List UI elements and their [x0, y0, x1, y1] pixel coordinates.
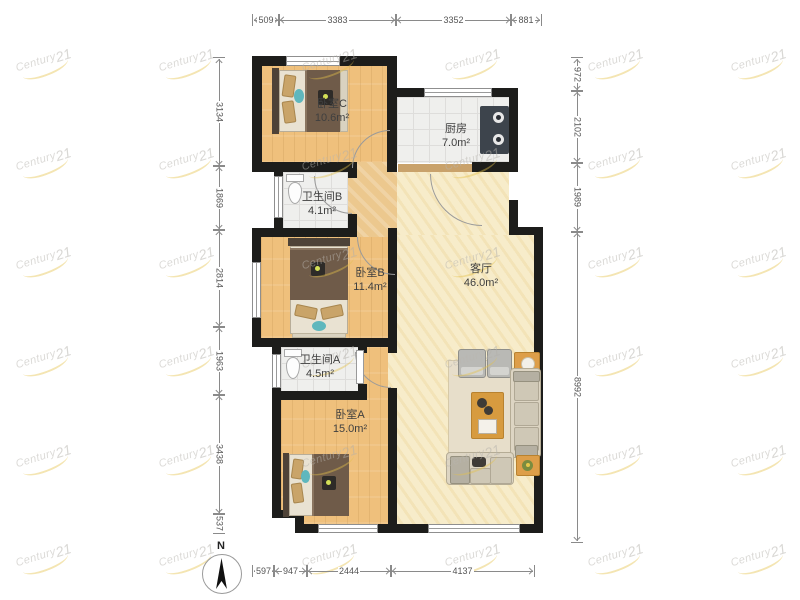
dimension-value: 1869 — [215, 187, 224, 209]
room-label-bedroom-b: 卧室B 11.4m² — [353, 266, 386, 295]
room-name: 卧室B — [353, 266, 386, 280]
wall — [388, 228, 397, 237]
room-area: 4.1m² — [302, 204, 342, 218]
room-area: 11.4m² — [353, 280, 386, 294]
dimension-bottom: 597 — [252, 565, 275, 577]
wall — [509, 227, 543, 235]
watermark: Century21 — [156, 430, 246, 485]
dimension-value: 597 — [255, 567, 272, 576]
notch-patch — [281, 518, 295, 524]
dimension-value: 881 — [517, 16, 534, 25]
wall — [509, 88, 518, 172]
armchair — [458, 349, 486, 378]
bed-b-headboard — [288, 238, 350, 246]
watermark: Century21 — [585, 133, 675, 188]
window-bedroom-c — [286, 56, 340, 66]
watermark: Century21 — [156, 133, 246, 188]
wall — [348, 214, 357, 237]
watermark: Century21 — [585, 331, 675, 386]
watermark: Century21 — [13, 232, 103, 287]
watermark: Century21 — [728, 133, 800, 188]
room-name: 卧室A — [333, 408, 367, 422]
bed-b-tray — [311, 262, 325, 276]
dimension-value: 2444 — [338, 567, 360, 576]
room-label-bathroom-a: 卫生间A 4.5m² — [300, 353, 340, 382]
watermark: Century21 — [728, 232, 800, 287]
watermark: Century21 — [728, 529, 800, 584]
watermark: Century21 — [728, 331, 800, 386]
dimension-value: 3352 — [442, 16, 464, 25]
watermark: Century21 — [156, 34, 246, 89]
watermark: Century21 — [585, 34, 675, 89]
dimension-left: 2814 — [213, 229, 225, 328]
dimension-value: 2814 — [215, 267, 224, 289]
room-label-bedroom-a: 卧室A 15.0m² — [333, 408, 367, 437]
window-bathroom-b — [274, 176, 283, 218]
watermark: Century21 — [13, 34, 103, 89]
entry-door-gap — [509, 172, 518, 200]
watermark: Century21 — [585, 430, 675, 485]
sofa-main — [510, 368, 541, 458]
wall — [252, 338, 397, 347]
room-name: 卫生间B — [302, 190, 342, 204]
dimension-value: 8992 — [573, 376, 582, 398]
dimension-bottom: 2444 — [306, 565, 392, 577]
room-label-living-room: 客厅 46.0m² — [464, 262, 498, 291]
dimension-left: 1869 — [213, 165, 225, 231]
armchair — [487, 349, 512, 378]
watermark: Century21 — [585, 529, 675, 584]
room-name: 客厅 — [464, 262, 498, 276]
watermark: Century21 — [585, 232, 675, 287]
dimension-bottom: 4137 — [390, 565, 535, 577]
window-bathroom-a — [272, 354, 281, 388]
room-area: 10.6m² — [315, 111, 349, 125]
dimension-left: 3134 — [213, 57, 225, 167]
dimension-bottom: 947 — [273, 565, 308, 577]
bed-c-headboard — [272, 68, 279, 134]
dimension-right: 1989 — [571, 162, 583, 233]
wall — [272, 391, 367, 400]
dimension-top: 3383 — [278, 14, 397, 26]
room-name: 卫生间A — [300, 353, 340, 367]
bed-a-tray — [322, 476, 336, 490]
bed-b-cushion — [312, 321, 326, 331]
watermark: Century21 — [13, 529, 103, 584]
north-label: N — [217, 540, 225, 552]
floor-plan: Century21Century21Century21Century21Cent… — [0, 0, 800, 600]
room-label-bedroom-c: 卧室C 10.6m² — [315, 97, 349, 126]
dimension-left: 3438 — [213, 394, 225, 515]
dimension-value: 3438 — [215, 443, 224, 465]
dimension-value: 3134 — [215, 101, 224, 123]
watermark: Century21 — [156, 232, 246, 287]
bed-b-bench — [292, 333, 346, 338]
dimension-value: 537 — [215, 515, 224, 532]
dimension-value: 4137 — [451, 567, 473, 576]
dimension-top: 3352 — [395, 14, 512, 26]
dimension-top: 509 — [252, 14, 280, 26]
window-bedroom-a — [318, 524, 378, 533]
wall — [252, 56, 262, 172]
room-name: 卧室C — [315, 97, 349, 111]
side-table — [516, 455, 540, 476]
toilet-bathroom-b — [286, 174, 304, 182]
bed-c-cushion — [294, 89, 304, 103]
dimension-right: 972 — [571, 57, 583, 92]
stove — [480, 106, 509, 154]
dimension-top: 881 — [510, 14, 542, 26]
north-compass: N — [198, 540, 246, 598]
sofa-secondary — [446, 452, 514, 485]
dimension-value: 1989 — [573, 186, 582, 208]
dimension-right: 8992 — [571, 231, 583, 543]
room-label-bathroom-b: 卫生间B 4.1m² — [302, 190, 342, 219]
room-area: 15.0m² — [333, 422, 367, 436]
watermark: Century21 — [13, 133, 103, 188]
door-leaf-bathroom-a — [356, 350, 364, 384]
dimension-value: 3383 — [326, 16, 348, 25]
watermark: Century21 — [156, 331, 246, 386]
watermark: Century21 — [442, 34, 532, 89]
wall — [509, 200, 518, 228]
watermark: Century21 — [728, 430, 800, 485]
window-kitchen — [424, 88, 492, 97]
wall — [252, 162, 352, 172]
dimension-left: 1963 — [213, 326, 225, 396]
room-area: 46.0m² — [464, 276, 498, 290]
bed-a-cushion — [301, 470, 310, 483]
dimension-right: 2102 — [571, 90, 583, 164]
window-bedroom-b — [252, 262, 261, 318]
dimension-value: 509 — [257, 16, 274, 25]
dimension-value: 947 — [282, 567, 299, 576]
room-name: 厨房 — [442, 122, 470, 136]
dimension-value: 1963 — [215, 350, 224, 372]
coffee-table — [471, 392, 504, 439]
room-label-kitchen: 厨房 7.0m² — [442, 122, 470, 151]
wall — [252, 228, 357, 237]
window-living-room — [428, 524, 520, 533]
room-area: 7.0m² — [442, 136, 470, 150]
kitchen-threshold — [398, 164, 472, 172]
dimension-left: 537 — [213, 513, 225, 534]
watermark: Century21 — [728, 34, 800, 89]
wall — [388, 388, 397, 533]
wall — [472, 162, 518, 172]
dimension-value: 972 — [573, 66, 582, 83]
dimension-value: 2102 — [573, 116, 582, 138]
watermark: Century21 — [13, 331, 103, 386]
watermark: Century21 — [13, 430, 103, 485]
room-area: 4.5m² — [300, 367, 340, 381]
